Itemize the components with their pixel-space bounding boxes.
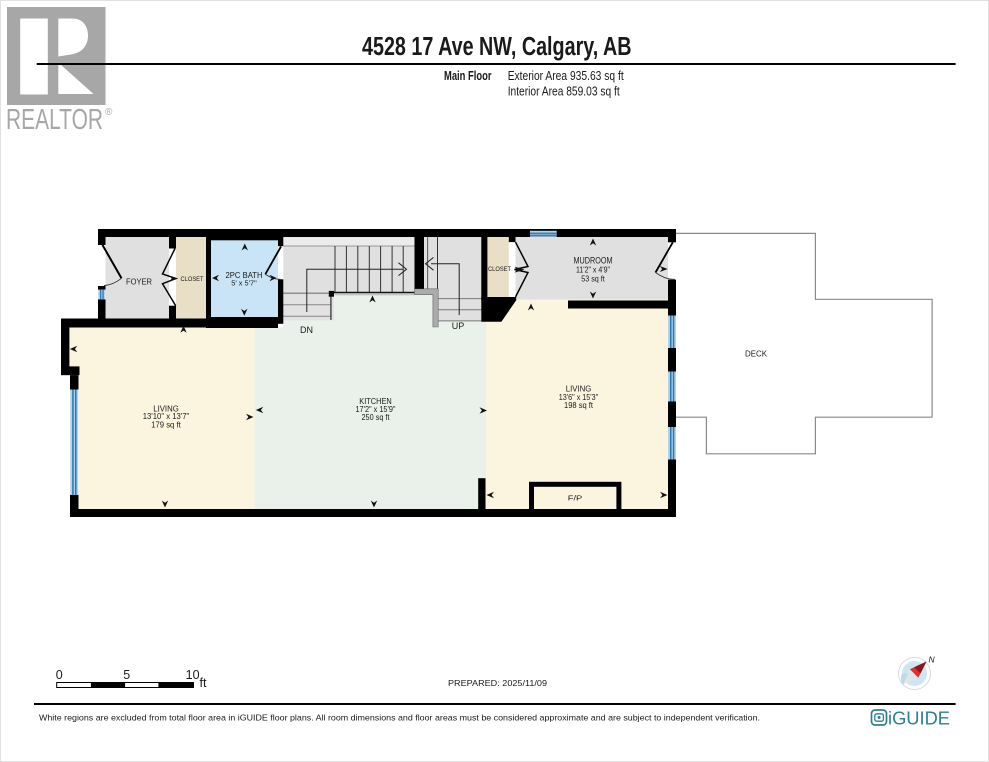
svg-text:DECK: DECK <box>745 350 768 359</box>
svg-text:White regions are excluded fro: White regions are excluded from total fl… <box>39 713 760 723</box>
svg-text:DN: DN <box>300 325 313 335</box>
svg-text:iGUIDE: iGUIDE <box>888 708 950 729</box>
svg-text:Interior Area 859.03 sq ft: Interior Area 859.03 sq ft <box>508 85 620 99</box>
svg-text:198 sq ft: 198 sq ft <box>564 401 594 410</box>
svg-text:F/P: F/P <box>568 494 583 503</box>
svg-text:®: ® <box>105 107 113 118</box>
svg-text:FOYER: FOYER <box>126 277 152 287</box>
svg-text:MUDROOM: MUDROOM <box>574 256 613 266</box>
svg-text:Main Floor: Main Floor <box>444 69 492 83</box>
svg-text:Exterior Area 935.63 sq ft: Exterior Area 935.63 sq ft <box>508 69 624 83</box>
svg-text:0: 0 <box>56 668 63 682</box>
svg-text:5' x 5'7": 5' x 5'7" <box>231 279 257 288</box>
svg-text:N: N <box>929 655 936 665</box>
svg-text:CLOSET: CLOSET <box>181 276 204 283</box>
svg-text:10: 10 <box>186 668 200 682</box>
svg-text:11'2" x 4'9": 11'2" x 4'9" <box>576 266 610 275</box>
svg-text:5: 5 <box>123 668 130 682</box>
svg-text:179 sq ft: 179 sq ft <box>151 420 181 429</box>
svg-text:CLOSET: CLOSET <box>488 266 511 273</box>
svg-text:4528 17 Ave NW, Calgary, AB: 4528 17 Ave NW, Calgary, AB <box>362 33 632 61</box>
svg-text:ft: ft <box>200 676 207 690</box>
svg-text:UP: UP <box>452 321 465 331</box>
svg-text:53 sq ft: 53 sq ft <box>581 275 605 284</box>
svg-text:PREPARED: 2025/11/09: PREPARED: 2025/11/09 <box>448 678 547 688</box>
svg-text:REALTOR: REALTOR <box>6 104 103 136</box>
svg-text:250 sq ft: 250 sq ft <box>362 413 391 422</box>
